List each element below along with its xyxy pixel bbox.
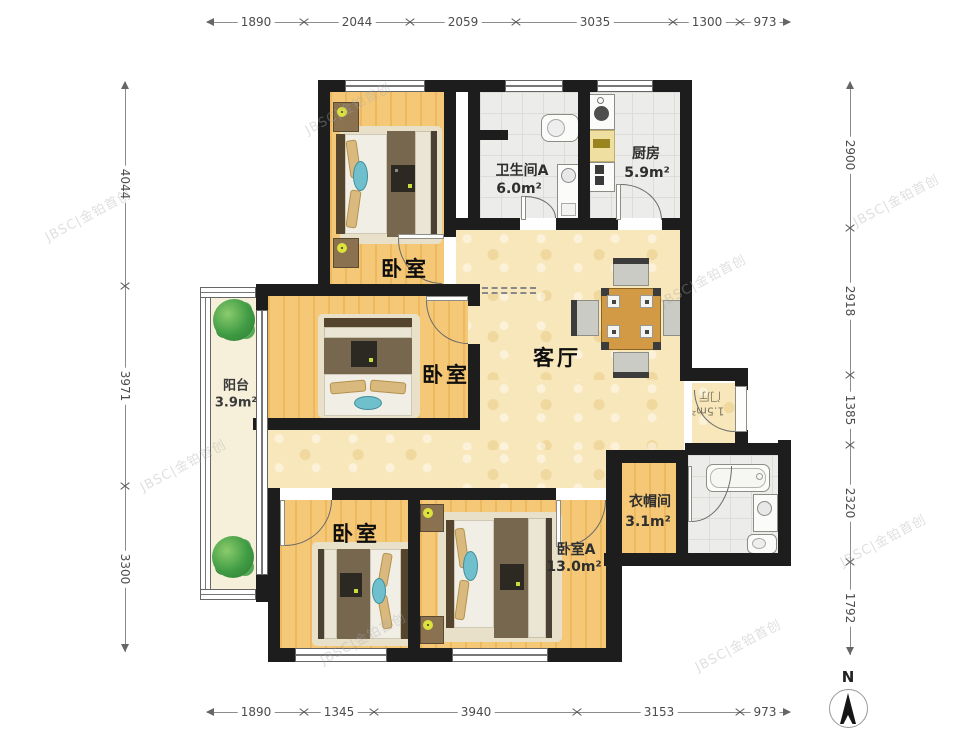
dim-tick	[369, 707, 380, 718]
dim-value: 3940	[458, 705, 495, 719]
dim-value: 1792	[843, 590, 857, 627]
compass-north-label: N	[842, 668, 855, 686]
dim-arrow	[121, 644, 129, 652]
bed-throw	[391, 165, 416, 192]
plate	[640, 295, 653, 308]
plant-icon	[212, 536, 254, 578]
wall	[256, 284, 480, 296]
dim-value: 973	[751, 705, 780, 719]
balcony-window	[200, 589, 256, 600]
wall	[685, 443, 791, 455]
dot	[516, 582, 520, 586]
room-area-kitchen: 5.9m²	[624, 165, 670, 181]
cushion	[353, 161, 368, 191]
bed-edge	[431, 131, 437, 237]
dim-value: 1300	[689, 15, 726, 29]
bed-headboard	[336, 134, 345, 234]
dot	[408, 184, 412, 188]
dim-value: 1345	[321, 705, 358, 719]
room-label-bedroom-a: 卧室A	[557, 539, 596, 559]
dot	[395, 169, 398, 172]
room-area-entry: 1.5m²	[692, 405, 725, 418]
room-area-balcony: 3.9m²	[215, 396, 257, 411]
cushion	[354, 396, 382, 410]
dim-tick	[845, 370, 856, 381]
wall	[256, 287, 268, 310]
dim-value: 2044	[339, 15, 376, 29]
dim-tick	[511, 17, 522, 28]
dim-tick	[299, 707, 310, 718]
bed-headboard	[446, 520, 454, 628]
faucet-icon	[597, 97, 604, 104]
wall	[680, 80, 692, 380]
bed-throw	[351, 341, 377, 367]
dim-value: 2320	[843, 485, 857, 522]
wall	[778, 440, 791, 566]
wall	[268, 488, 280, 662]
wall	[578, 92, 590, 218]
table-corner	[653, 342, 661, 350]
nightstand	[420, 616, 444, 644]
bed-footboard	[415, 131, 431, 237]
wall	[256, 575, 268, 602]
dim-value: 2059	[445, 15, 482, 29]
dim-arrow	[846, 81, 854, 89]
floor-plan-canvas: 卧室 卧室 卧室 客厅 卧室A 13.0m² 卫生间A 6.0m² 厨房 5.9…	[0, 0, 979, 741]
room-label-bathroom-a: 卫生间A	[496, 160, 549, 180]
toilet-bowl	[752, 538, 766, 549]
window	[452, 648, 548, 662]
bed-footboard	[528, 518, 546, 638]
wall	[468, 296, 480, 306]
dot	[369, 358, 373, 362]
table-corner	[601, 342, 609, 350]
dim-tick	[735, 707, 746, 718]
fixture	[561, 203, 576, 216]
dim-value: 973	[751, 15, 780, 29]
wall	[408, 500, 420, 648]
wall	[604, 553, 791, 566]
wall-stub	[480, 130, 508, 140]
room-label-bedroom-bottom: 卧室	[332, 518, 380, 548]
dim-arrow	[783, 708, 791, 716]
bed-headboard	[324, 318, 412, 327]
room-label-living: 客厅	[533, 342, 581, 372]
lamp-icon	[423, 620, 433, 630]
entry-door-leaf	[735, 386, 747, 432]
dim-arrow	[783, 18, 791, 26]
dim-value: 1890	[238, 15, 275, 29]
floor-living-2	[456, 380, 684, 450]
room-area-bathroom-a: 6.0m²	[496, 181, 542, 197]
nightstand	[333, 238, 359, 268]
counter-item	[593, 139, 610, 148]
nightstand	[420, 504, 444, 532]
wall	[468, 92, 480, 218]
lamp-icon	[423, 508, 433, 518]
dim-tick	[845, 440, 856, 451]
watermark: JBSC|金铂首创	[849, 169, 942, 230]
dim-tick	[735, 17, 746, 28]
wall	[456, 218, 520, 230]
dim-value: 3035	[577, 15, 614, 29]
dim-line-bottom	[207, 712, 790, 713]
chair-back	[613, 372, 649, 378]
dim-value: 2900	[843, 137, 857, 174]
compass-needle-notch	[843, 715, 853, 725]
burner-icon	[595, 176, 604, 185]
basin-icon	[561, 168, 576, 183]
lamp-icon	[337, 243, 347, 253]
balcony-door-window	[256, 310, 268, 575]
dim-arrow	[206, 708, 214, 716]
dim-tick	[120, 481, 131, 492]
wall	[676, 452, 688, 562]
wall	[662, 218, 692, 230]
cushion	[463, 551, 478, 581]
dim-tick	[120, 281, 131, 292]
plate	[607, 295, 620, 308]
dim-tick	[299, 17, 310, 28]
dim-tick	[572, 707, 583, 718]
toilet-bowl	[547, 119, 565, 137]
window	[597, 80, 653, 92]
plate	[607, 325, 620, 338]
cushion	[372, 578, 386, 604]
dim-arrow	[121, 81, 129, 89]
window	[505, 80, 563, 92]
bed-throw	[340, 573, 362, 597]
watermark: JBSC|金铂首创	[41, 184, 134, 245]
bed-throw	[500, 564, 524, 590]
dot	[354, 589, 358, 593]
dim-tick	[405, 17, 416, 28]
burner-icon	[595, 165, 604, 174]
bed-footboard	[324, 549, 337, 639]
room-label-bedroom-top: 卧室	[381, 253, 429, 283]
dim-value: 3153	[641, 705, 678, 719]
opening-dashed	[482, 287, 536, 294]
dim-value: 3971	[118, 368, 132, 405]
floor-corridor-right	[456, 450, 606, 488]
plant-icon	[213, 299, 255, 341]
chair-back	[613, 258, 649, 264]
room-label-bedroom-mid: 卧室	[422, 359, 470, 389]
watermark: JBSC|金铂首创	[691, 614, 784, 675]
dim-value: 1385	[843, 392, 857, 429]
floor-corridor	[268, 430, 456, 488]
basin-icon	[757, 501, 772, 516]
plate	[640, 325, 653, 338]
dim-arrow	[846, 647, 854, 655]
room-label-cloakroom: 衣帽间	[629, 491, 671, 511]
dim-value: 3300	[118, 551, 132, 588]
room-label-entry: 门厅	[699, 389, 721, 405]
bed-edge	[546, 518, 552, 638]
room-area-bedroom-a: 13.0m²	[546, 559, 601, 575]
room-label-kitchen: 厨房	[632, 143, 660, 163]
sink-basin-icon	[594, 106, 609, 121]
wall	[444, 92, 456, 237]
dim-value: 2918	[843, 283, 857, 320]
bed-panel	[324, 327, 412, 338]
wall	[556, 218, 618, 230]
room-label-balcony: 阳台	[223, 375, 249, 394]
wall	[253, 418, 480, 430]
dim-tick	[668, 17, 679, 28]
dim-arrow	[206, 18, 214, 26]
drain-icon	[756, 473, 763, 480]
room-area-cloakroom: 3.1m²	[625, 514, 671, 530]
chair-back	[571, 300, 577, 336]
dim-value: 1890	[238, 705, 275, 719]
wall	[332, 488, 556, 500]
balcony-window	[200, 287, 256, 298]
